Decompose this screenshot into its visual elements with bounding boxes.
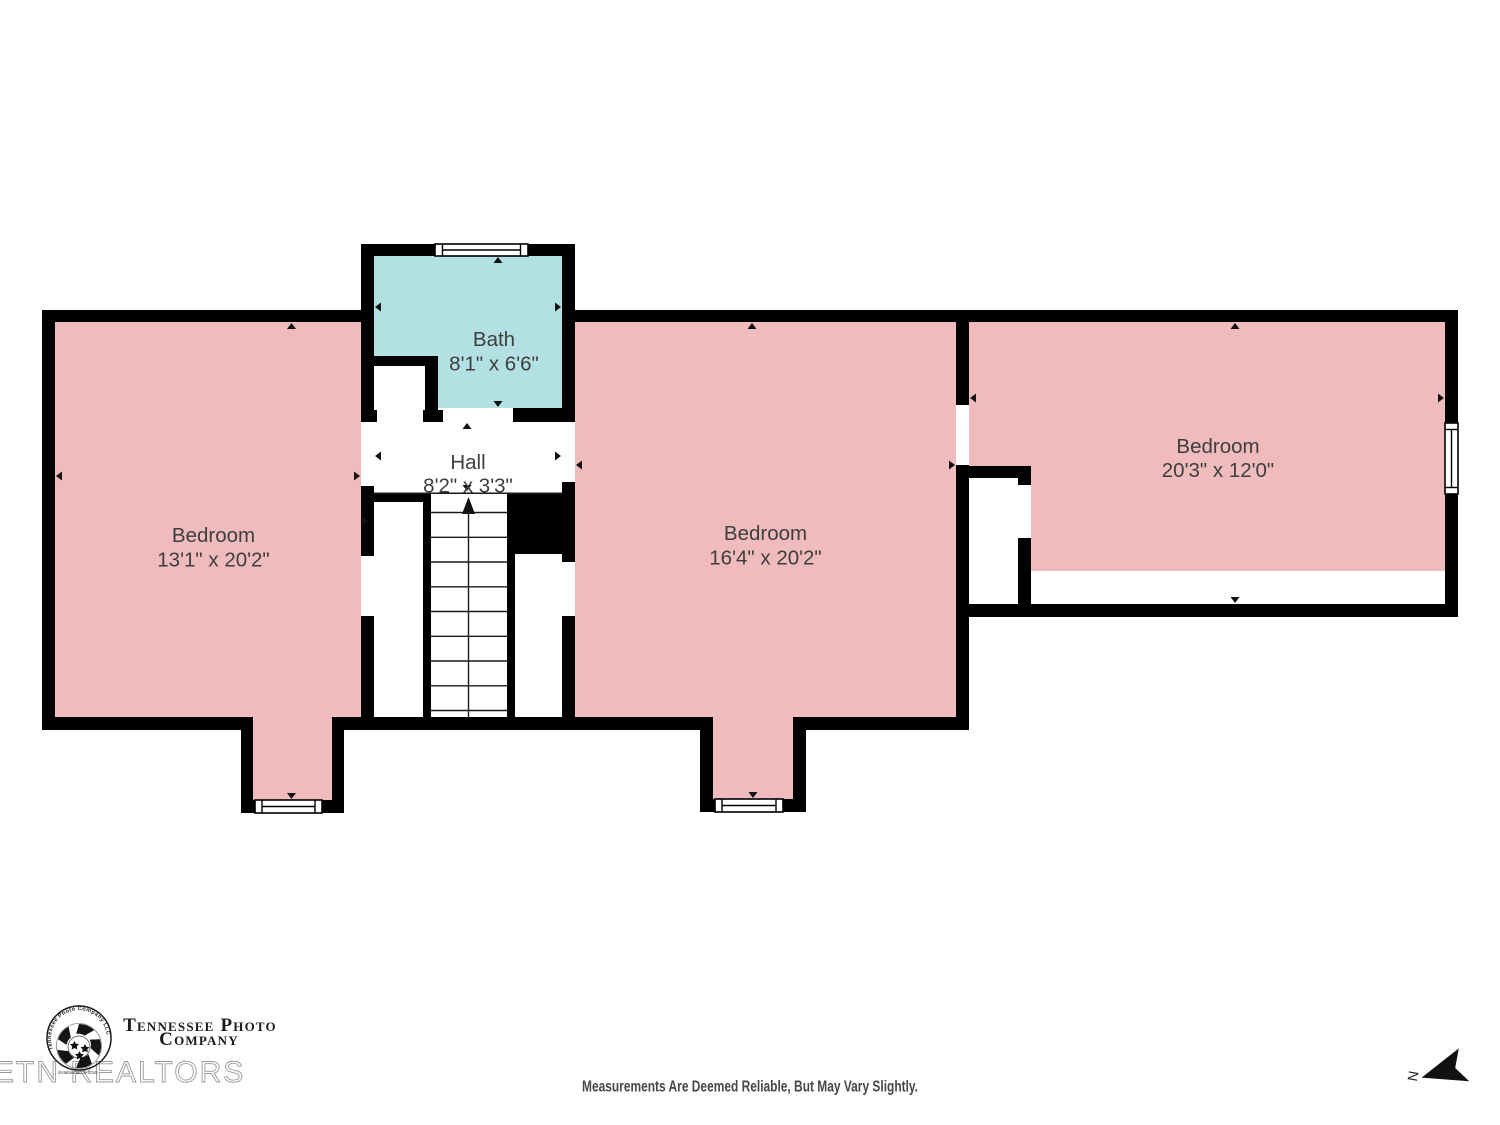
svg-text:Bath: Bath [473, 328, 515, 351]
svg-text:8'1" x 6'6": 8'1" x 6'6" [449, 353, 539, 376]
svg-text:Bedroom: Bedroom [724, 522, 807, 545]
svg-text:Hall: Hall [450, 451, 485, 474]
svg-text:Bedroom: Bedroom [172, 524, 255, 547]
svg-text:Bedroom: Bedroom [1176, 435, 1259, 458]
svg-text:ETN REALTORS: ETN REALTORS [0, 1056, 245, 1089]
svg-text:8'2" x 3'3": 8'2" x 3'3" [423, 474, 513, 497]
svg-text:Measurements Are Deemed Reliab: Measurements Are Deemed Reliable, But Ma… [582, 1078, 918, 1095]
svg-text:Company: Company [159, 1029, 239, 1050]
svg-text:20'3" x 12'0": 20'3" x 12'0" [1162, 459, 1274, 482]
svg-text:Established in 2015: Established in 2015 [58, 1070, 98, 1075]
svg-text:16'4" x 20'2": 16'4" x 20'2" [709, 547, 821, 570]
svg-text:13'1" x 20'2": 13'1" x 20'2" [157, 549, 269, 572]
